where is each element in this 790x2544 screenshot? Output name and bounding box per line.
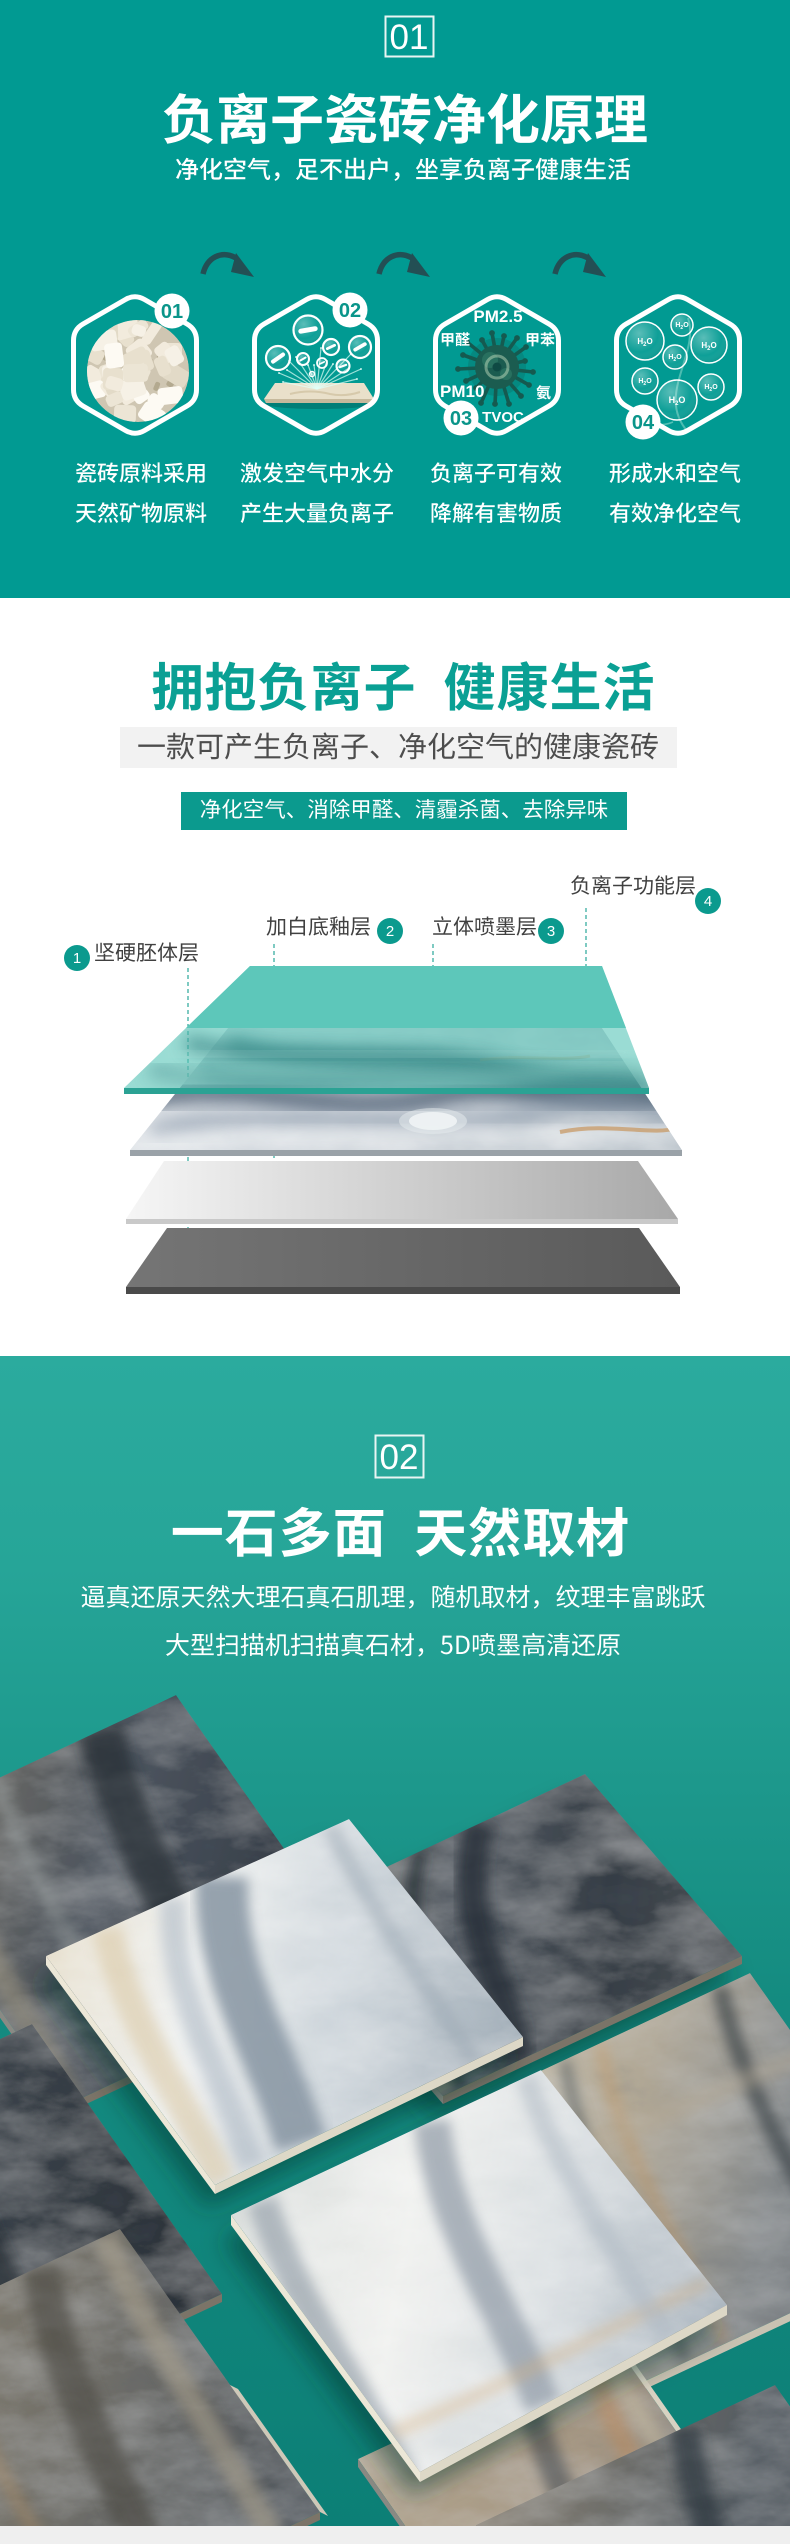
svg-text:TVOC: TVOC [482,409,524,426]
svg-text:02: 02 [380,1438,419,1477]
svg-text:1: 1 [73,950,81,967]
svg-text:4: 4 [704,893,712,910]
svg-text:02: 02 [339,300,361,322]
svg-text:03: 03 [450,408,472,430]
svg-text:2: 2 [386,923,394,940]
svg-text:3: 3 [547,923,555,940]
svg-text:04: 04 [632,412,655,434]
svg-text:01: 01 [390,18,429,57]
svg-text:01: 01 [161,301,183,323]
svg-text:PM10: PM10 [440,382,484,401]
svg-text:PM2.5: PM2.5 [473,307,522,326]
